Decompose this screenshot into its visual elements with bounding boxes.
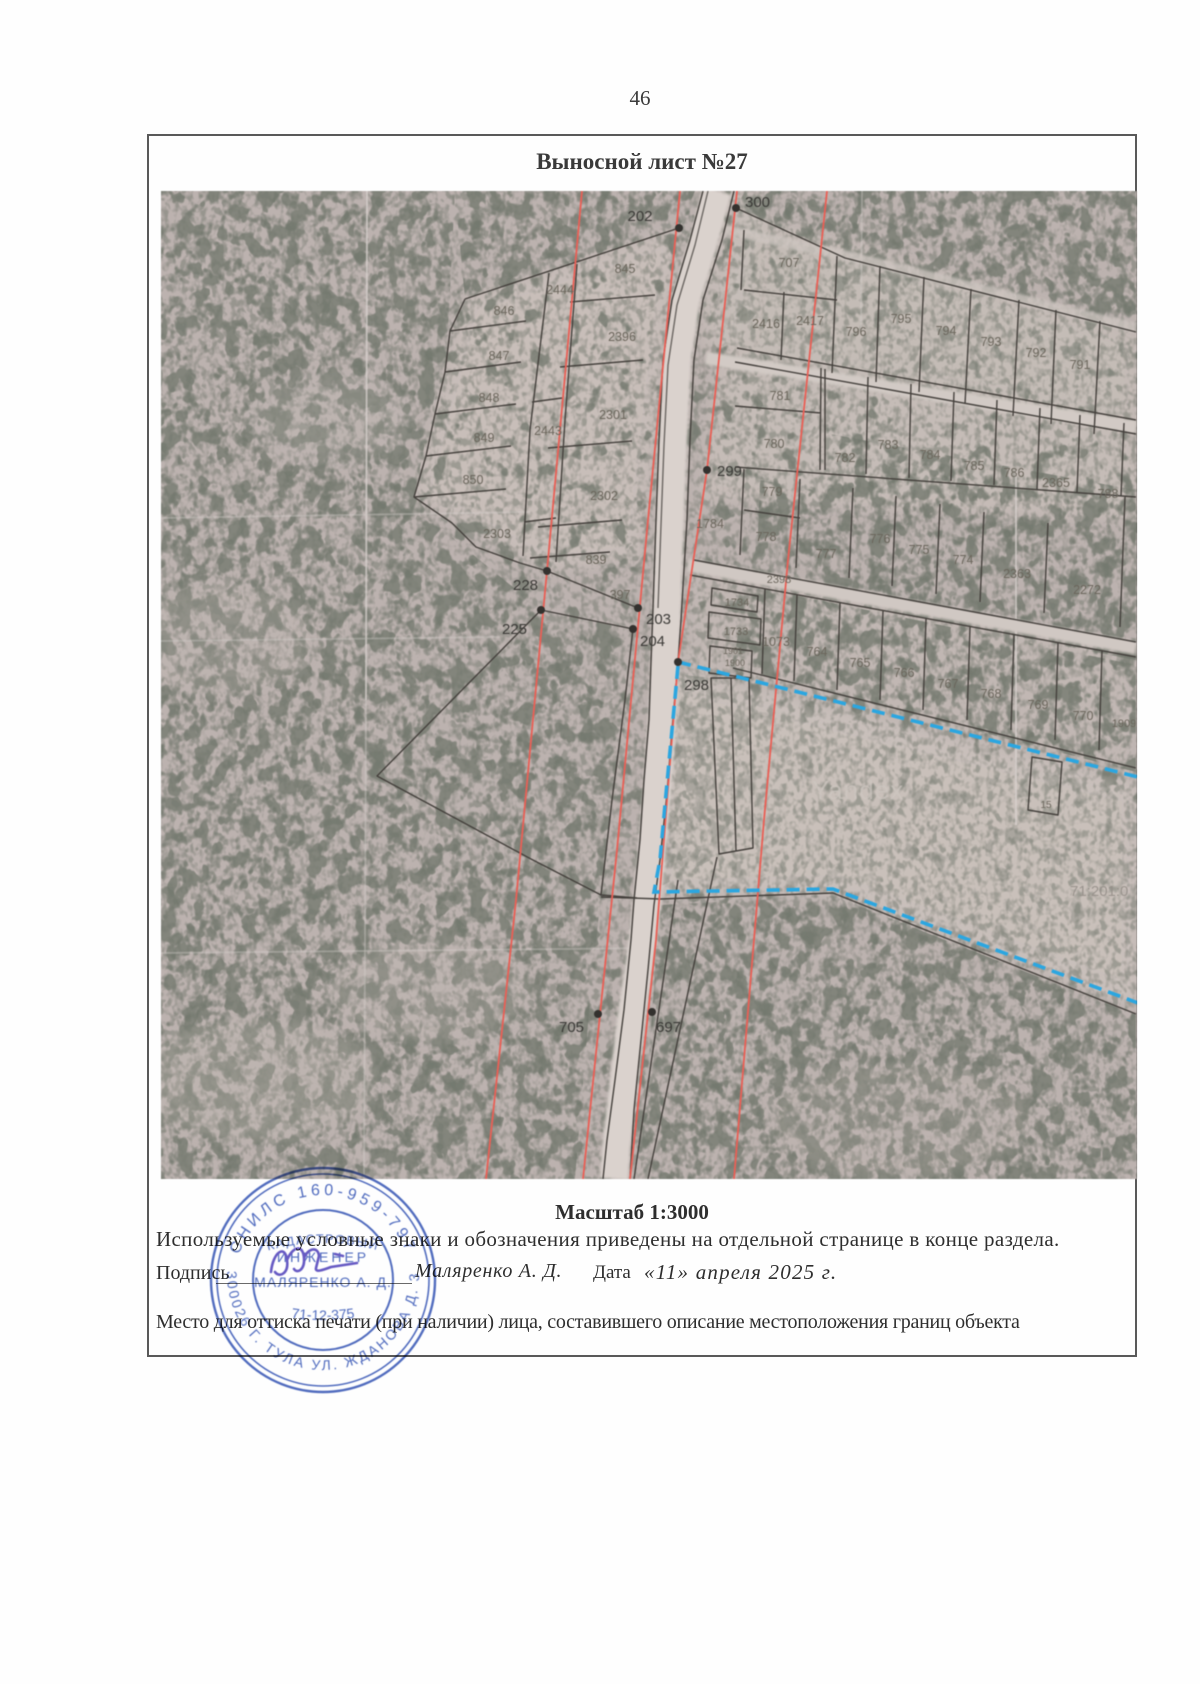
svg-text:796: 796: [846, 325, 867, 339]
svg-text:1909: 1909: [1112, 718, 1136, 730]
svg-text:845: 845: [615, 262, 636, 276]
svg-text:792: 792: [1026, 346, 1047, 360]
svg-text:МАЛЯРЕНКО А. Д.: МАЛЯРЕНКО А. Д.: [254, 1274, 392, 1290]
svg-text:847: 847: [489, 349, 510, 363]
svg-text:2272: 2272: [1073, 583, 1101, 597]
svg-text:228: 228: [513, 577, 538, 594]
svg-text:766: 766: [894, 666, 915, 680]
svg-text:849: 849: [474, 431, 495, 445]
svg-text:767: 767: [938, 677, 959, 691]
svg-text:299: 299: [717, 463, 742, 480]
svg-text:2443: 2443: [534, 424, 562, 438]
svg-text:2302: 2302: [590, 489, 618, 503]
svg-text:775: 775: [909, 543, 930, 557]
svg-text:785: 785: [964, 459, 985, 473]
svg-text:1784: 1784: [696, 517, 724, 531]
svg-text:782: 782: [835, 451, 856, 465]
svg-text:1733: 1733: [724, 626, 748, 638]
svg-text:846: 846: [494, 304, 515, 318]
svg-text:774: 774: [953, 553, 974, 567]
svg-text:707: 707: [779, 256, 800, 270]
svg-text:697: 697: [656, 1019, 681, 1036]
svg-text:2365: 2365: [1042, 476, 1070, 490]
svg-text:791: 791: [1070, 358, 1091, 372]
svg-text:2416: 2416: [752, 317, 780, 331]
svg-text:298: 298: [684, 677, 709, 694]
svg-text:783: 783: [878, 438, 899, 452]
svg-text:776: 776: [870, 532, 891, 546]
svg-text:2396: 2396: [608, 330, 636, 344]
svg-text:784: 784: [920, 448, 941, 462]
svg-text:781: 781: [770, 389, 791, 403]
svg-text:71:201:0: 71:201:0: [1070, 883, 1128, 900]
svg-text:225: 225: [502, 621, 527, 638]
svg-text:1073: 1073: [762, 635, 790, 649]
svg-text:71-12-375: 71-12-375: [291, 1305, 356, 1323]
svg-text:15: 15: [1040, 800, 1052, 811]
svg-text:850: 850: [463, 473, 484, 487]
svg-text:768: 768: [981, 687, 1002, 701]
svg-text:397: 397: [610, 588, 631, 602]
svg-text:769: 769: [1028, 698, 1049, 712]
svg-text:705: 705: [559, 1019, 584, 1036]
svg-text:1734: 1734: [725, 597, 749, 609]
svg-text:204: 204: [640, 633, 665, 650]
svg-text:793: 793: [981, 335, 1002, 349]
svg-text:Yandex: Yandex: [812, 775, 904, 805]
svg-text:765: 765: [850, 656, 871, 670]
svg-text:202: 202: [627, 208, 652, 225]
svg-text:2444: 2444: [546, 283, 574, 297]
svg-text:203: 203: [646, 611, 671, 628]
svg-text:770: 770: [1073, 709, 1094, 723]
svg-text:1901: 1901: [723, 646, 743, 656]
svg-text:2301: 2301: [599, 408, 627, 422]
svg-text:2363: 2363: [1003, 567, 1031, 581]
svg-text:786: 786: [1004, 466, 1025, 480]
svg-text:780: 780: [764, 437, 785, 451]
svg-text:848: 848: [479, 391, 500, 405]
svg-text:839: 839: [586, 553, 607, 567]
svg-text:2398: 2398: [767, 574, 791, 586]
svg-text:795: 795: [891, 312, 912, 326]
svg-text:2417: 2417: [796, 314, 824, 328]
svg-text:764: 764: [807, 645, 828, 659]
svg-text:2303: 2303: [483, 527, 511, 541]
svg-text:779: 779: [762, 485, 783, 499]
svg-text:300: 300: [745, 194, 770, 211]
svg-text:1900: 1900: [725, 658, 745, 668]
svg-text:788: 788: [1098, 487, 1119, 501]
svg-text:777: 777: [816, 547, 837, 561]
svg-text:778: 778: [756, 530, 777, 544]
svg-text:794: 794: [936, 324, 957, 338]
